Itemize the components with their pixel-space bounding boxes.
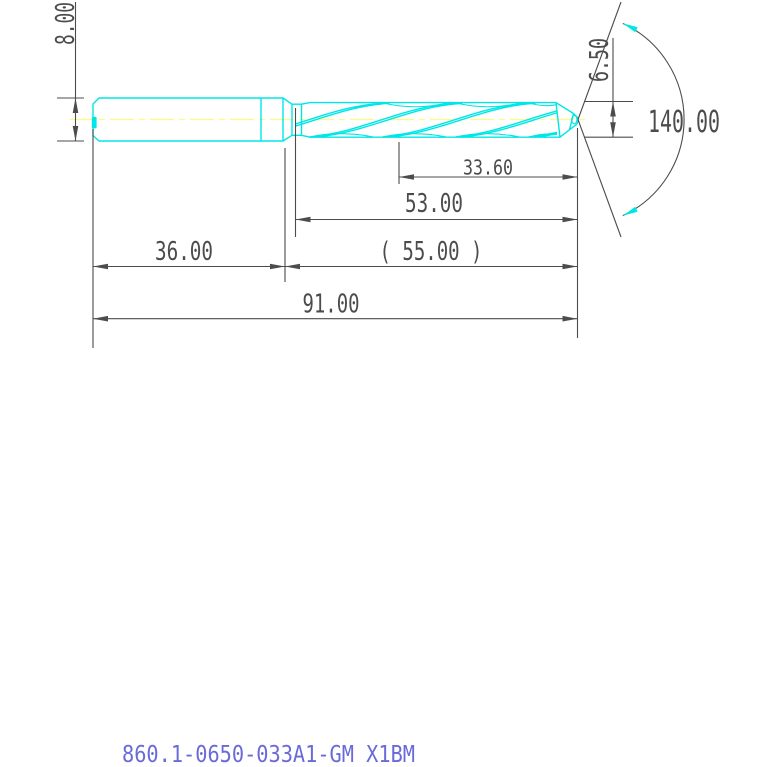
overall-length-value: 91.00: [303, 290, 360, 320]
arrow-right-icon: [563, 217, 578, 223]
arrow-down-icon: [610, 122, 616, 137]
dim-cutting-diameter: 6.50: [584, 38, 633, 137]
cad-drawing-canvas: 140.00 8.00 6.50 33.60 53.00 36.00: [0, 0, 767, 767]
arrow-right-icon: [270, 264, 285, 270]
dim-point-angle: 140.00: [578, 2, 720, 237]
point-angle-value: 140.00: [648, 105, 720, 140]
arrow-up-icon: [610, 102, 616, 117]
arrow-left-icon: [296, 217, 311, 223]
step-length-value: 33.60: [463, 156, 513, 180]
drill-technical-drawing: 140.00 8.00 6.50 33.60 53.00 36.00: [0, 0, 767, 767]
shank-diameter-value: 8.00: [51, 2, 81, 45]
cutting-diameter-value: 6.50: [585, 38, 615, 82]
flute-length-value: 53.00: [405, 189, 463, 219]
arrow-left-icon: [93, 264, 108, 270]
arrow-down-icon: [73, 126, 79, 141]
arrow-right-icon: [563, 264, 578, 270]
dim-step-length: 33.60: [399, 142, 578, 184]
shank-length-value: 36.00: [155, 237, 213, 267]
part-number: 860.1-0650-033A1-GM X1BM: [122, 740, 415, 767]
reference-length-value: ( 55.00 ): [380, 237, 483, 267]
arc-arrow-bottom-icon: [622, 207, 638, 218]
arrow-right-icon: [563, 174, 578, 180]
shank-center-mark: [92, 117, 97, 129]
arrow-right-icon: [563, 316, 578, 322]
arc-arrow-top-icon: [622, 21, 638, 32]
arrow-left-icon: [93, 316, 108, 322]
arrow-left-icon: [285, 264, 300, 270]
arrow-left-icon: [399, 174, 414, 180]
arrow-up-icon: [73, 98, 79, 113]
dim-overall-length: 91.00: [93, 290, 578, 322]
